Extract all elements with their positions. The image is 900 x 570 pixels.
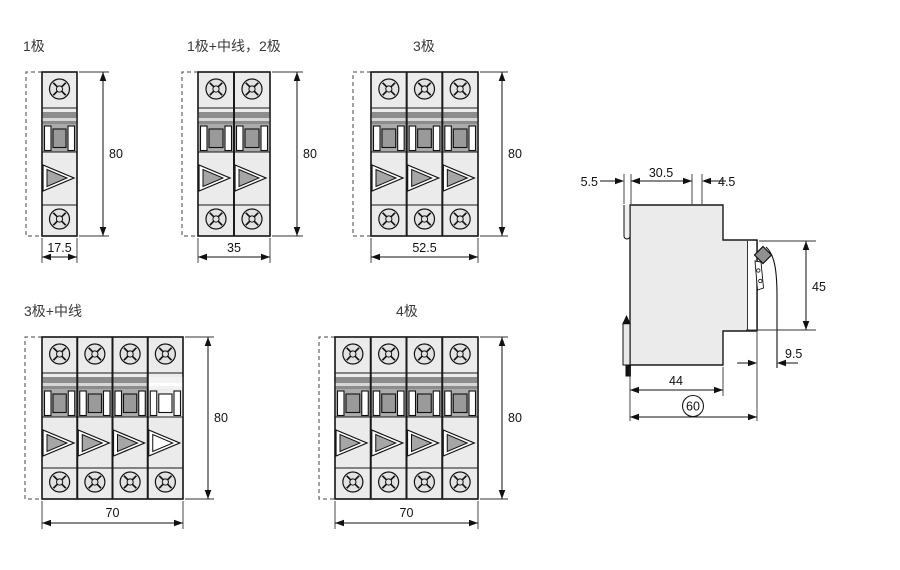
breaker-front-views [25,72,508,529]
terminal-screw-icon [85,344,105,364]
dim-width-1p: 17.5 [47,241,71,255]
breaker-side-view [600,174,816,421]
terminal-screw-icon [85,472,105,492]
terminal-screw-icon [379,472,399,492]
dimension-drawing-page: 1极 1极+中线，2极 3极 3极+中线 4极 80 17.5 80 35 80… [0,0,900,570]
terminal-screw-icon [450,344,470,364]
terminal-screw-icon [343,472,363,492]
terminal-screw-icon [450,79,470,99]
breaker-front-view [353,72,508,263]
dim-width-3p: 52.5 [412,241,436,255]
terminal-screw-icon [379,209,399,229]
terminal-screw-icon [343,344,363,364]
terminal-screw-icon [242,209,262,229]
terminal-screw-icon [242,79,262,99]
panel-title-3p: 3极 [413,38,435,54]
dim-side-handle-depth: 4.5 [718,175,735,189]
dim-side-terminal-depth: 9.5 [785,347,802,361]
terminal-screw-icon [415,209,435,229]
dim-height-4p: 80 [508,411,522,425]
terminal-screw-icon [206,209,226,229]
dim-height-2p: 80 [303,147,317,161]
technical-drawing: 1极 1极+中线，2极 3极 3极+中线 4极 80 17.5 80 35 80… [0,0,900,570]
terminal-screw-icon [50,472,70,492]
panel-title-4p: 4极 [396,303,418,319]
terminal-screw-icon [414,472,434,492]
dim-side-front-height: 45 [812,280,826,294]
terminal-screw-icon [120,344,140,364]
dim-side-clip-offset: 5.5 [581,175,598,189]
dim-height-1p: 80 [109,147,123,161]
dim-side-base-depth: 44 [669,374,683,388]
panel-title-3pn: 3极+中线 [24,303,82,319]
terminal-screw-icon [414,344,434,364]
terminal-screw-icon [206,79,226,99]
panel-title-2p: 1极+中线，2极 [187,38,281,54]
dim-height-3pn: 80 [214,411,228,425]
dim-height-3p: 80 [508,147,522,161]
terminal-screw-icon [379,79,399,99]
terminal-screw-icon [155,472,175,492]
breaker-front-view [182,72,303,263]
terminal-screw-icon [155,344,175,364]
terminal-screw-icon [415,79,435,99]
terminal-screw-icon [50,79,70,99]
terminal-screw-icon [450,209,470,229]
terminal-screw-icon [50,344,70,364]
dim-width-2p: 35 [227,241,241,255]
dim-width-4p: 70 [400,506,414,520]
terminal-screw-icon [379,344,399,364]
terminal-screw-icon [120,472,140,492]
breaker-front-view [25,337,214,529]
breaker-front-view [26,72,109,263]
terminal-screw-icon [50,209,70,229]
dim-width-3pn: 70 [106,506,120,520]
dim-side-overall-depth: 60 [686,400,700,414]
breaker-front-view [319,337,508,529]
terminal-screw-icon [450,472,470,492]
panel-title-1p: 1极 [23,38,45,54]
dim-side-top-depth: 30.5 [649,166,673,180]
